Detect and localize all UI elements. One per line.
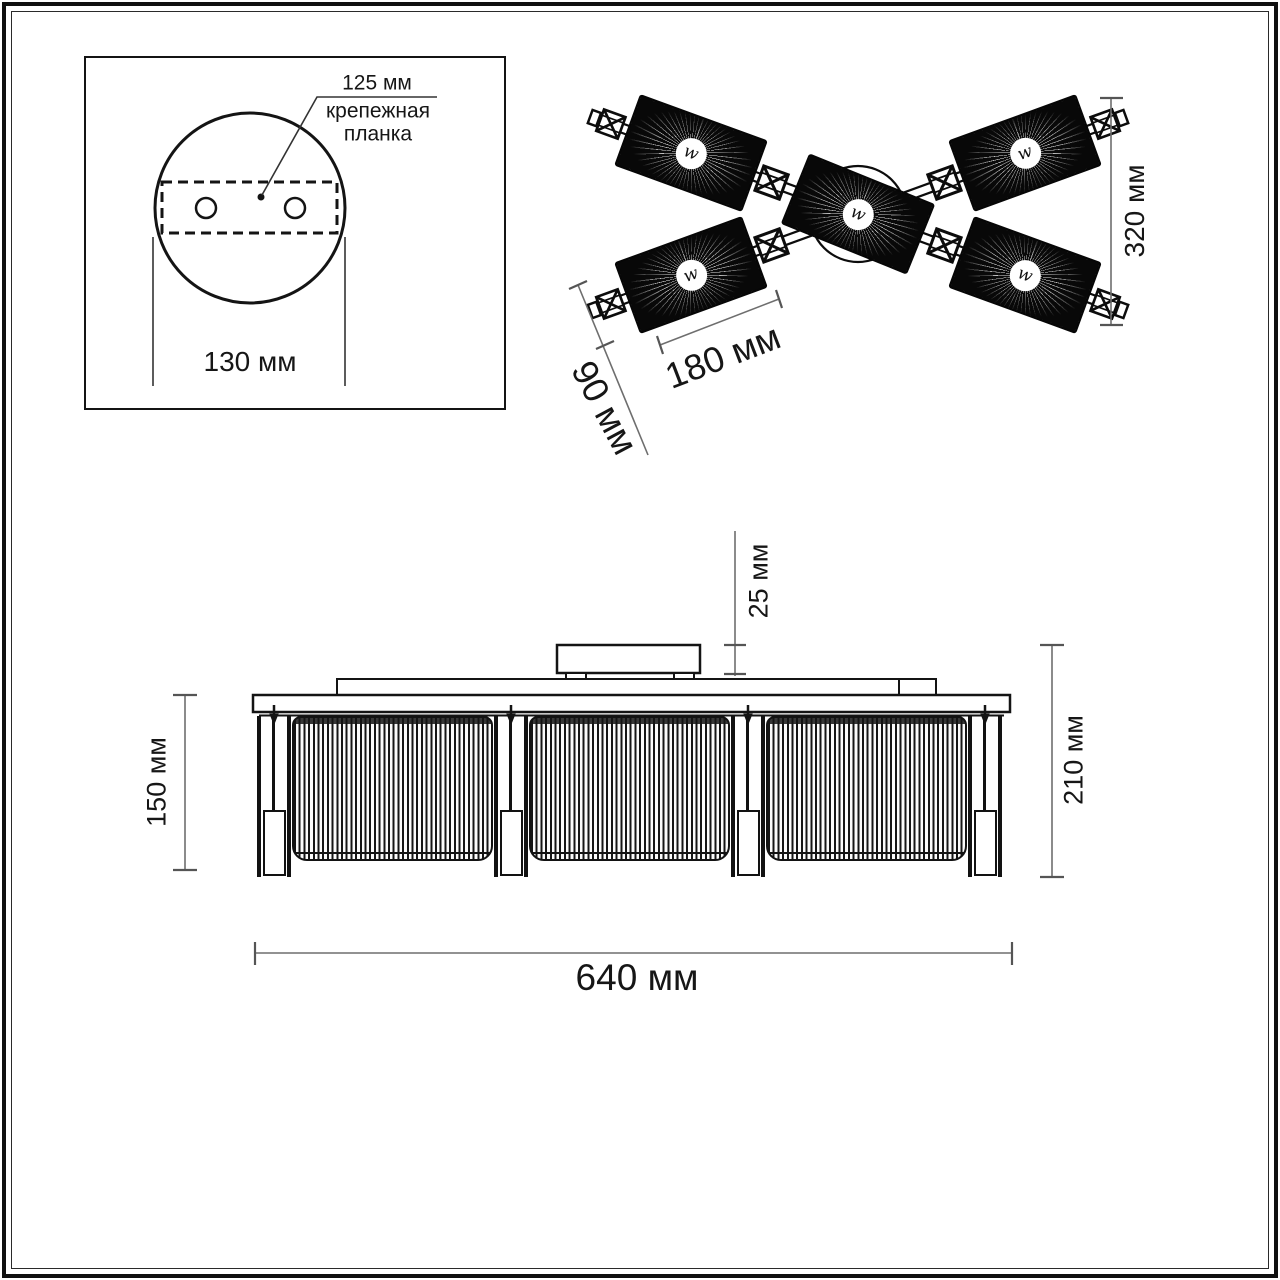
side-view-structure [253,645,1010,724]
post-rod-left [731,716,735,877]
linework-layer [0,0,1280,1280]
lattice-connector [928,229,961,262]
crystal-post-1 [257,716,291,877]
post-stem [509,716,512,812]
crystal-post-4 [968,716,1002,877]
post-stem [746,716,749,812]
dim-640-label: 640 мм [576,958,699,998]
lattice-connector [755,166,788,199]
mounting-plate-label-line1: крепежная [326,100,430,123]
ceiling-canopy-circle [155,113,345,303]
mount-tier-plate [337,679,936,695]
bulb-circle: w [1005,255,1045,295]
dim-210-label: 210 мм [1059,715,1088,805]
dim-150-label: 150 мм [142,737,171,827]
lattice-connector [755,229,788,262]
dim-130-label: 130 мм [204,347,297,377]
lattice-connector [928,166,961,199]
post-rod-right [761,716,765,877]
bulb-symbol: w [848,202,869,226]
bulb-circle: w [838,194,878,234]
side-shade-section-1 [292,716,493,861]
bulb-symbol: w [681,141,702,165]
side-shade-section-3 [766,716,967,861]
mounting-plate-label-line2: планка [326,123,430,146]
dim-125-label: 125 мм [342,73,412,96]
ceiling-canopy-side [557,645,700,673]
crystal-drop [500,810,523,876]
bulb-symbol: w [1015,141,1036,165]
dim-320-label: 320 мм [1120,165,1150,258]
crystal-drop [974,810,997,876]
post-rod-left [257,716,261,877]
bulb-symbol: w [681,263,702,287]
mounting-plate-label: крепежная планка [326,100,430,145]
plate-reference-dot [258,194,265,201]
bulb-circle: w [671,255,711,295]
screw-hole-left [196,198,216,218]
dim-25-label: 25 мм [744,544,773,619]
mounting-plate-dashed-outline [162,182,337,233]
crystal-drop [263,810,286,876]
crystal-post-2 [494,716,528,877]
post-rod-right [524,716,528,877]
post-rod-right [287,716,291,877]
crystal-drop [737,810,760,876]
bulb-circle: w [1005,133,1045,173]
technical-drawing-page: w w w w w 125 мм крепеж [0,0,1280,1280]
post-rod-right [998,716,1002,877]
top-plate [253,695,1010,712]
side-shade-section-2 [529,716,730,861]
crystal-post-3 [731,716,765,877]
post-stem [272,716,275,812]
post-stem [983,716,986,812]
post-rod-left [494,716,498,877]
bulb-circle: w [671,133,711,173]
post-rod-left [968,716,972,877]
bulb-symbol: w [1015,263,1036,287]
screw-hole-right [285,198,305,218]
